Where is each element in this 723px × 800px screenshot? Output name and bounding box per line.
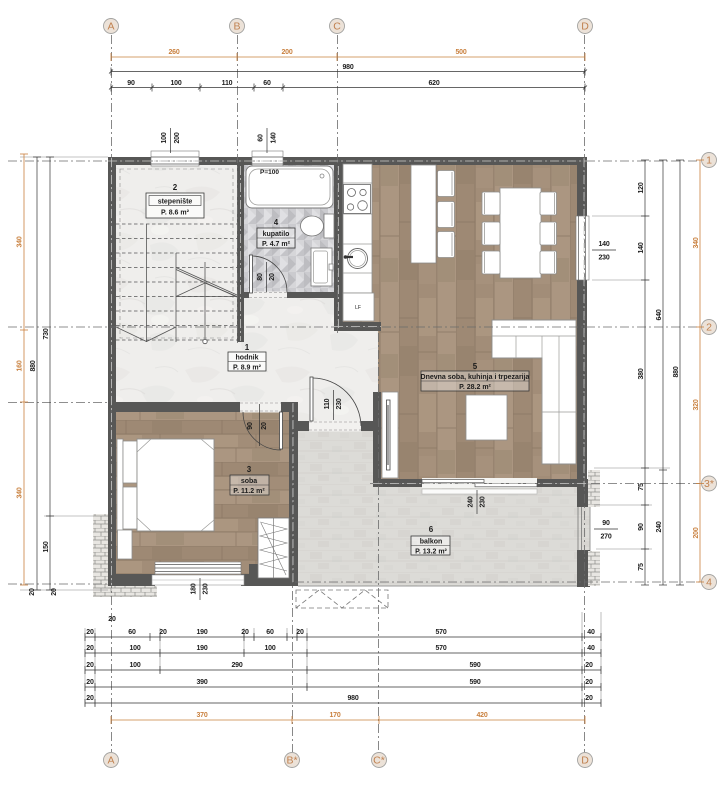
svg-text:D: D [581, 755, 589, 767]
svg-text:420: 420 [476, 712, 487, 719]
svg-text:730: 730 [43, 328, 50, 339]
svg-text:B: B [233, 21, 240, 33]
svg-text:20: 20 [261, 422, 268, 430]
svg-text:20: 20 [86, 679, 94, 686]
svg-text:Dnevna soba, kuhinja i trpezar: Dnevna soba, kuhinja i trpezarija [421, 374, 530, 381]
svg-text:100: 100 [129, 662, 140, 669]
svg-text:190: 190 [196, 629, 207, 636]
svg-text:P. 8.9 m²: P. 8.9 m² [233, 365, 262, 372]
svg-text:LF: LF [355, 305, 361, 311]
svg-text:340: 340 [693, 237, 700, 248]
svg-text:150: 150 [43, 541, 50, 552]
svg-text:20: 20 [86, 662, 94, 669]
svg-text:3*: 3* [704, 478, 714, 490]
svg-text:90: 90 [247, 422, 254, 430]
svg-text:590: 590 [469, 662, 480, 669]
svg-text:60: 60 [258, 134, 265, 142]
svg-text:170: 170 [329, 712, 340, 719]
svg-text:570: 570 [435, 629, 446, 636]
svg-text:A: A [107, 755, 114, 767]
svg-text:100: 100 [129, 645, 140, 652]
svg-text:380: 380 [638, 368, 645, 379]
svg-text:P. 11.2 m²: P. 11.2 m² [233, 488, 265, 495]
svg-text:140: 140 [598, 241, 609, 248]
svg-text:75: 75 [638, 483, 645, 491]
svg-text:4: 4 [706, 577, 712, 589]
svg-text:80: 80 [257, 273, 264, 281]
svg-text:2: 2 [706, 322, 712, 334]
svg-text:230: 230 [203, 583, 210, 594]
svg-text:370: 370 [196, 712, 207, 719]
svg-text:20: 20 [269, 273, 276, 281]
svg-text:6: 6 [429, 525, 434, 534]
svg-text:soba: soba [241, 478, 257, 485]
svg-text:20: 20 [585, 695, 593, 702]
svg-text:P. 4.7 m²: P. 4.7 m² [262, 241, 291, 248]
svg-text:180: 180 [191, 583, 198, 594]
svg-text:20: 20 [29, 588, 36, 596]
svg-text:320: 320 [693, 399, 700, 410]
svg-text:390: 390 [196, 679, 207, 686]
svg-text:A: A [107, 21, 114, 33]
svg-text:60: 60 [263, 80, 271, 87]
svg-text:240: 240 [656, 521, 663, 532]
svg-text:60: 60 [128, 629, 136, 636]
svg-text:20: 20 [296, 629, 304, 636]
svg-text:1: 1 [706, 155, 712, 167]
svg-text:200: 200 [281, 49, 292, 56]
svg-text:120: 120 [638, 182, 645, 193]
svg-text:500: 500 [455, 49, 466, 56]
svg-text:40: 40 [587, 645, 595, 652]
svg-text:D: D [581, 21, 589, 33]
svg-text:980: 980 [342, 64, 353, 71]
svg-text:340: 340 [17, 487, 24, 498]
svg-text:110: 110 [324, 398, 331, 409]
svg-text:40: 40 [587, 629, 595, 636]
svg-text:620: 620 [428, 80, 439, 87]
svg-text:200: 200 [174, 132, 181, 143]
svg-text:20: 20 [86, 695, 94, 702]
svg-text:20: 20 [51, 588, 58, 596]
svg-text:20: 20 [108, 616, 116, 623]
svg-text:590: 590 [469, 679, 480, 686]
svg-text:240: 240 [468, 496, 475, 507]
svg-text:2: 2 [173, 183, 178, 192]
svg-text:90: 90 [602, 520, 610, 527]
svg-text:C*: C* [373, 755, 385, 767]
svg-text:5: 5 [473, 362, 478, 371]
svg-text:20: 20 [159, 629, 167, 636]
svg-text:20: 20 [86, 645, 94, 652]
svg-text:C: C [333, 21, 341, 33]
svg-text:340: 340 [17, 236, 24, 247]
svg-text:kupatilo: kupatilo [263, 231, 290, 238]
svg-text:230: 230 [598, 255, 609, 262]
svg-text:60: 60 [266, 629, 274, 636]
svg-text:160: 160 [17, 360, 24, 371]
svg-text:90: 90 [127, 80, 135, 87]
svg-text:20: 20 [241, 629, 249, 636]
svg-text:90: 90 [638, 523, 645, 531]
svg-text:P. 28.2 m²: P. 28.2 m² [459, 384, 491, 391]
svg-text:3: 3 [247, 465, 252, 474]
svg-text:stepenište: stepenište [158, 199, 193, 206]
svg-text:230: 230 [480, 496, 487, 507]
svg-text:20: 20 [86, 629, 94, 636]
svg-text:200: 200 [693, 527, 700, 538]
svg-text:100: 100 [264, 645, 275, 652]
svg-text:100: 100 [170, 80, 181, 87]
svg-text:20: 20 [585, 679, 593, 686]
svg-text:140: 140 [271, 132, 278, 143]
svg-text:230: 230 [336, 398, 343, 409]
svg-text:980: 980 [347, 695, 358, 702]
svg-text:190: 190 [196, 645, 207, 652]
svg-text:hodnik: hodnik [236, 355, 259, 362]
svg-text:1: 1 [245, 343, 250, 352]
svg-text:640: 640 [656, 309, 663, 320]
svg-text:110: 110 [222, 80, 233, 87]
svg-text:20: 20 [585, 662, 593, 669]
svg-text:P. 13.2 m²: P. 13.2 m² [415, 549, 447, 556]
svg-text:balkon: balkon [420, 539, 443, 546]
svg-text:880: 880 [673, 366, 680, 377]
svg-text:290: 290 [231, 662, 242, 669]
svg-text:P=100: P=100 [260, 169, 279, 176]
svg-text:570: 570 [435, 645, 446, 652]
svg-text:4: 4 [274, 218, 279, 227]
svg-text:270: 270 [600, 534, 611, 541]
svg-text:P. 8.6 m²: P. 8.6 m² [161, 210, 190, 217]
svg-text:B*: B* [286, 755, 297, 767]
svg-text:140: 140 [638, 242, 645, 253]
svg-text:880: 880 [30, 360, 37, 371]
svg-text:100: 100 [161, 132, 168, 143]
svg-text:260: 260 [168, 49, 179, 56]
svg-text:75: 75 [638, 563, 645, 571]
